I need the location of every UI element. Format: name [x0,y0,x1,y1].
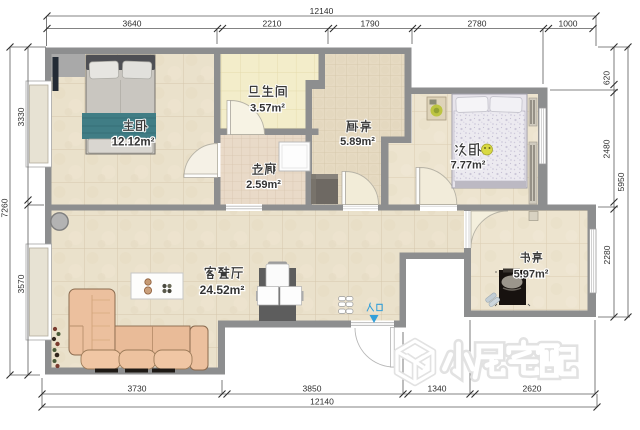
svg-text:2280: 2280 [602,245,612,264]
svg-text:3570: 3570 [16,274,26,293]
svg-text:2780: 2780 [468,19,487,29]
svg-text:12140: 12140 [310,6,334,16]
svg-text:7260: 7260 [0,198,10,217]
svg-text:7.77m²: 7.77m² [451,160,486,172]
svg-text:3640: 3640 [123,19,142,29]
svg-text:12.12m²: 12.12m² [112,137,155,149]
svg-text:2210: 2210 [263,19,282,29]
svg-text:5.89m²: 5.89m² [340,136,375,148]
svg-text:3330: 3330 [16,107,26,126]
svg-text:1000: 1000 [559,19,578,29]
svg-text:1790: 1790 [361,19,380,29]
svg-text:3730: 3730 [128,384,147,394]
svg-text:2.59m²: 2.59m² [246,179,281,191]
svg-text:620: 620 [602,71,612,85]
svg-text:3850: 3850 [303,384,322,394]
svg-text:5950: 5950 [616,172,626,191]
svg-text:2620: 2620 [523,384,542,394]
svg-text:24.52m²: 24.52m² [200,283,245,297]
svg-text:5.97m²: 5.97m² [514,269,549,281]
svg-text:1340: 1340 [428,384,447,394]
svg-text:2480: 2480 [602,139,612,158]
svg-text:12140: 12140 [310,397,334,407]
svg-text:3.57m²: 3.57m² [250,103,285,115]
